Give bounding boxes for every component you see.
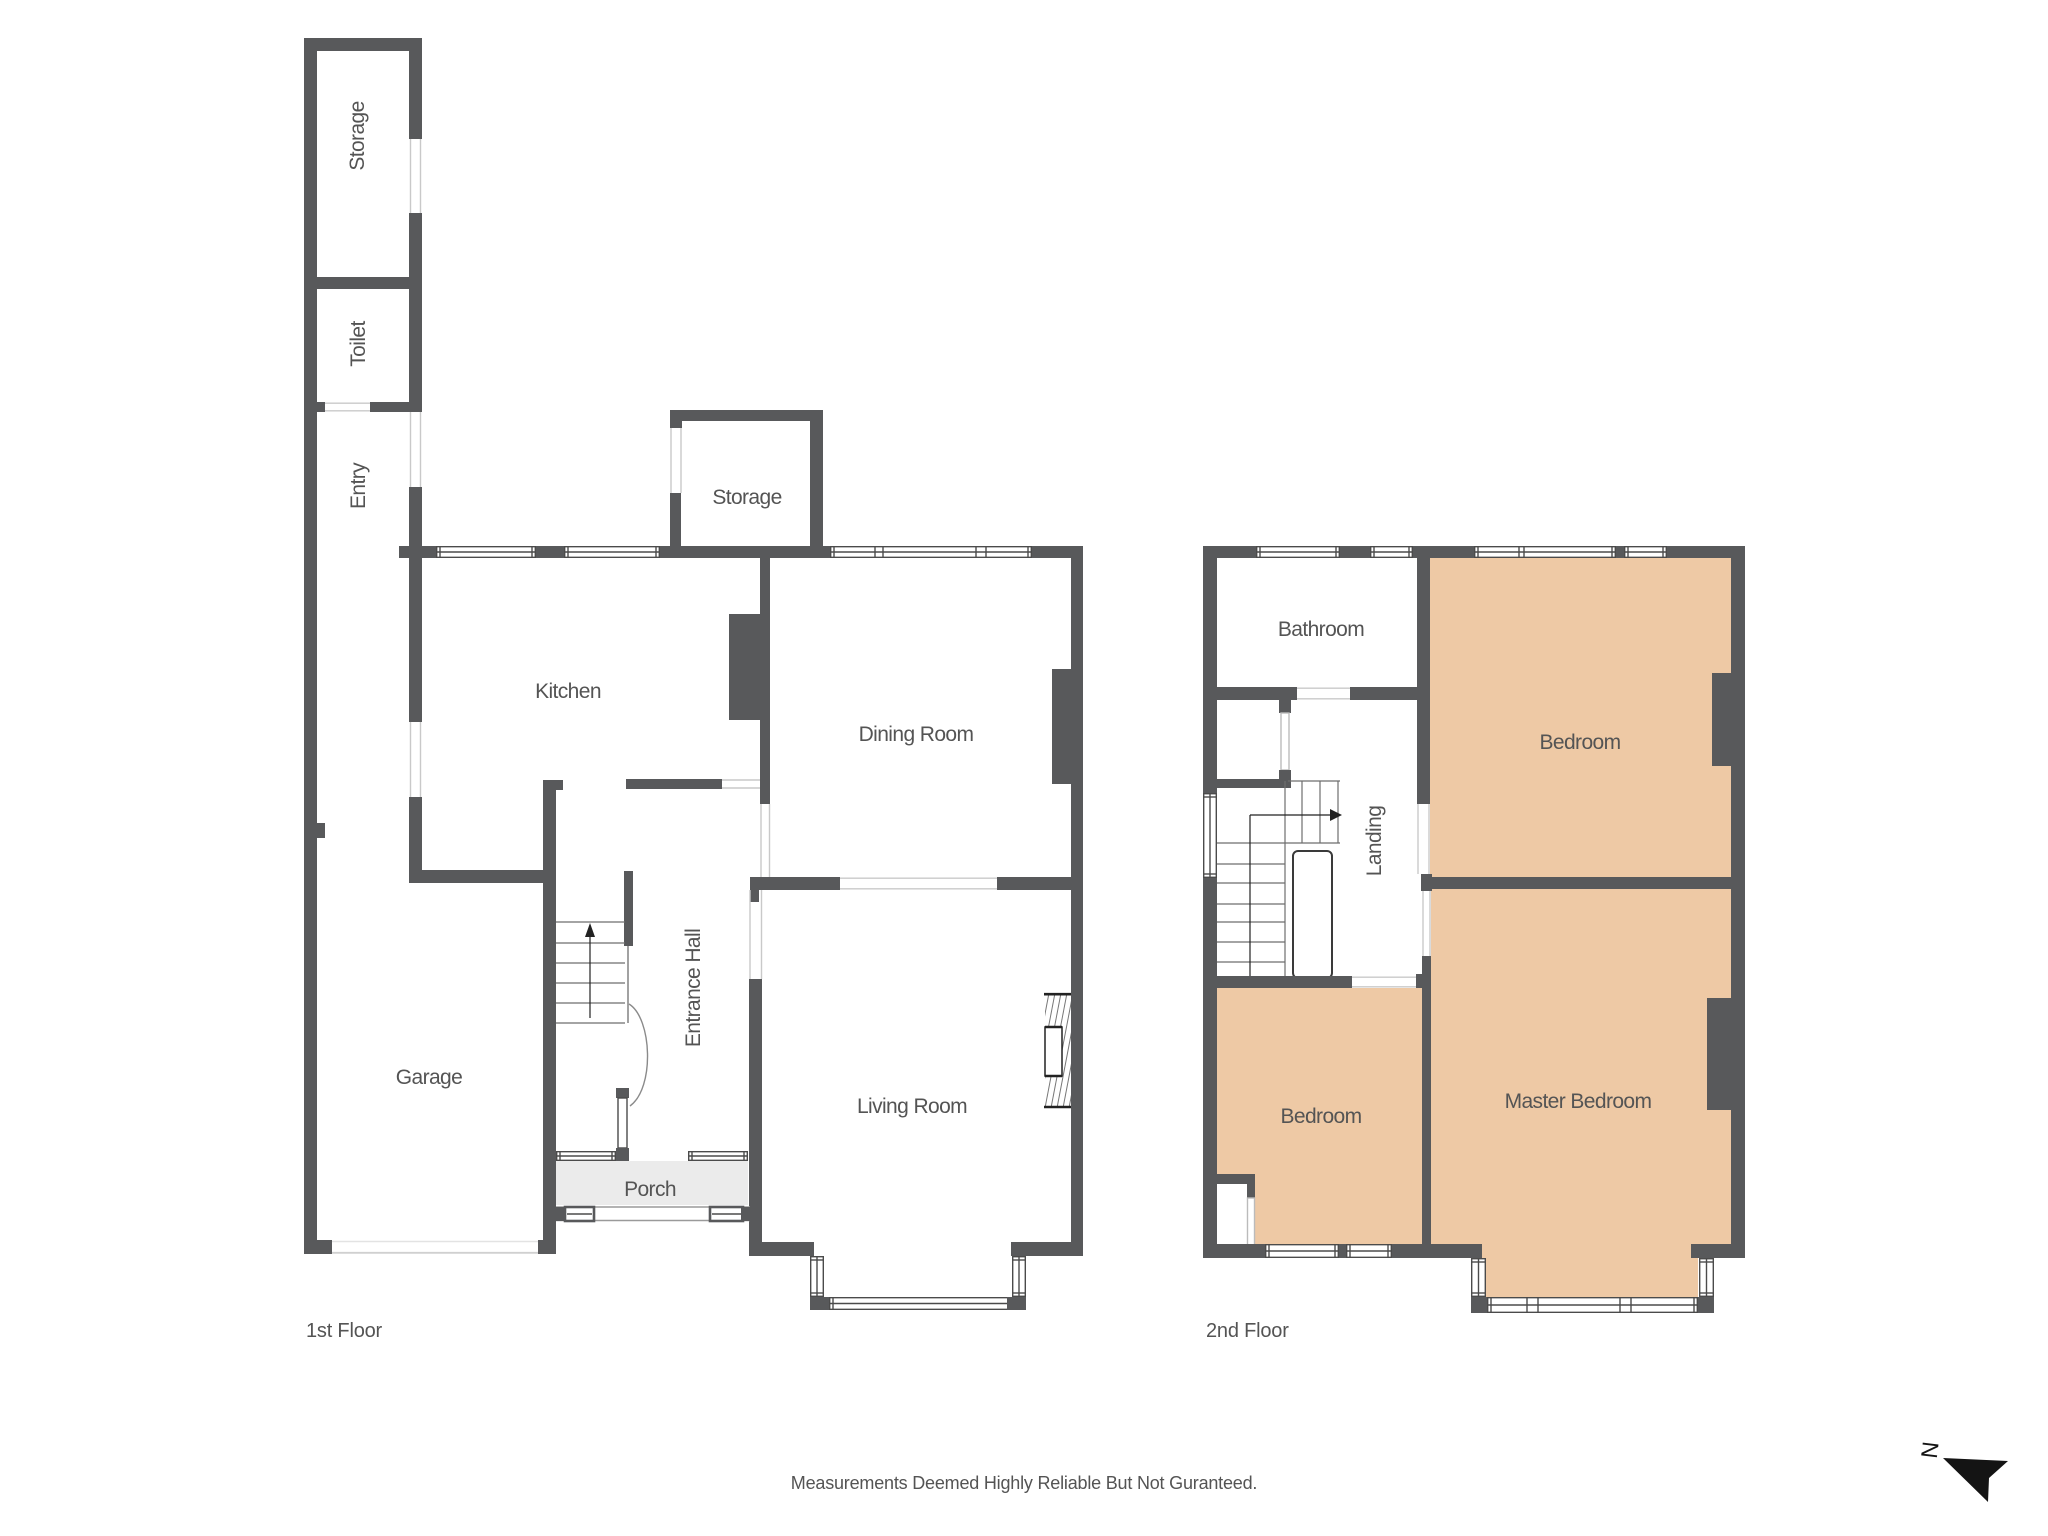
svg-text:Entry: Entry: [347, 462, 370, 509]
svg-text:2nd Floor: 2nd Floor: [1206, 1320, 1289, 1342]
svg-text:Toilet: Toilet: [347, 321, 370, 367]
svg-text:Landing: Landing: [1363, 806, 1386, 877]
svg-text:1st Floor: 1st Floor: [306, 1320, 383, 1342]
svg-text:Porch: Porch: [624, 1178, 676, 1201]
svg-text:Storage: Storage: [346, 101, 369, 170]
svg-text:Bedroom: Bedroom: [1539, 731, 1620, 754]
svg-text:Living Room: Living Room: [857, 1095, 967, 1118]
svg-text:N: N: [1916, 1440, 1944, 1460]
svg-text:Garage: Garage: [396, 1066, 462, 1089]
svg-text:Bathroom: Bathroom: [1278, 618, 1364, 641]
svg-text:Bedroom: Bedroom: [1280, 1105, 1361, 1128]
svg-text:Master Bedroom: Master Bedroom: [1505, 1090, 1652, 1113]
svg-text:Storage: Storage: [712, 486, 781, 509]
svg-text:Dining Room: Dining Room: [859, 723, 974, 746]
svg-text:Entrance Hall: Entrance Hall: [682, 929, 705, 1047]
svg-text:Measurements Deemed Highly Rel: Measurements Deemed Highly Reliable But …: [791, 1473, 1257, 1493]
svg-text:Kitchen: Kitchen: [535, 680, 601, 703]
